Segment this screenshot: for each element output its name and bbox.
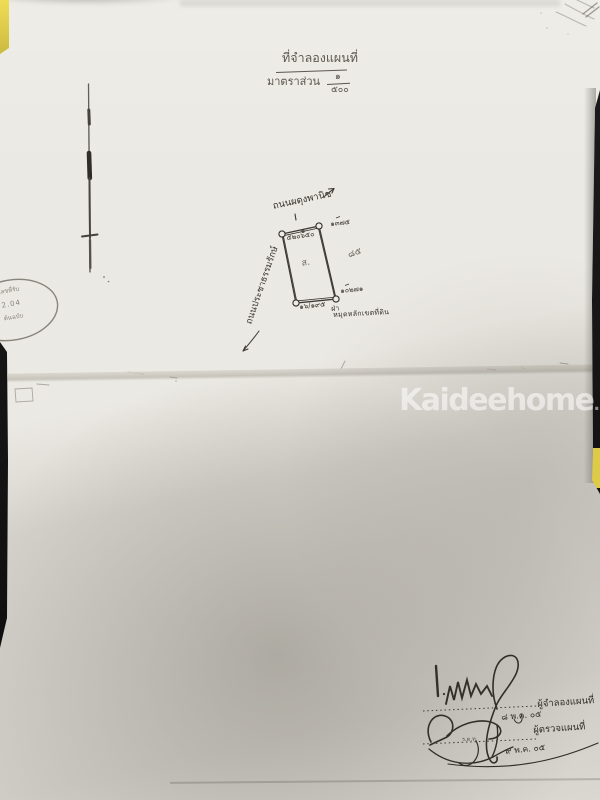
site-watermark-suffix: .com [594, 395, 600, 415]
corner-marker-circle [316, 223, 322, 229]
paper-edge-shadow [584, 88, 596, 483]
corner-marker-circle [279, 231, 285, 237]
map-title: ที่จำลองแผนที่ [282, 52, 358, 65]
scale-fraction-denominator: ๕๐๐ [331, 86, 349, 95]
pencil-scribbles [540, 0, 599, 35]
pencil-mark-inside-plot: ส. [301, 259, 311, 269]
land-plot-outline [282, 217, 349, 304]
road-arrow-left [243, 331, 259, 351]
scale-fraction-numerator: ๑ [335, 73, 341, 82]
dotted-line [423, 706, 537, 711]
site-watermark: Kaideehome.com [399, 383, 600, 418]
survey-rod-drawing [82, 84, 109, 282]
site-watermark-text: Kaideehome [399, 383, 594, 418]
corner-marker-circle [333, 296, 339, 302]
scale-label: มาตราส่วน [267, 76, 320, 87]
photo-of-survey-document: ที่จำลองแผนที่ มาตราส่วน ๑ ๕๐๐ ถนนผดุงพา… [0, 0, 600, 800]
inspector-rank: ร.ต.ท. [462, 737, 478, 743]
